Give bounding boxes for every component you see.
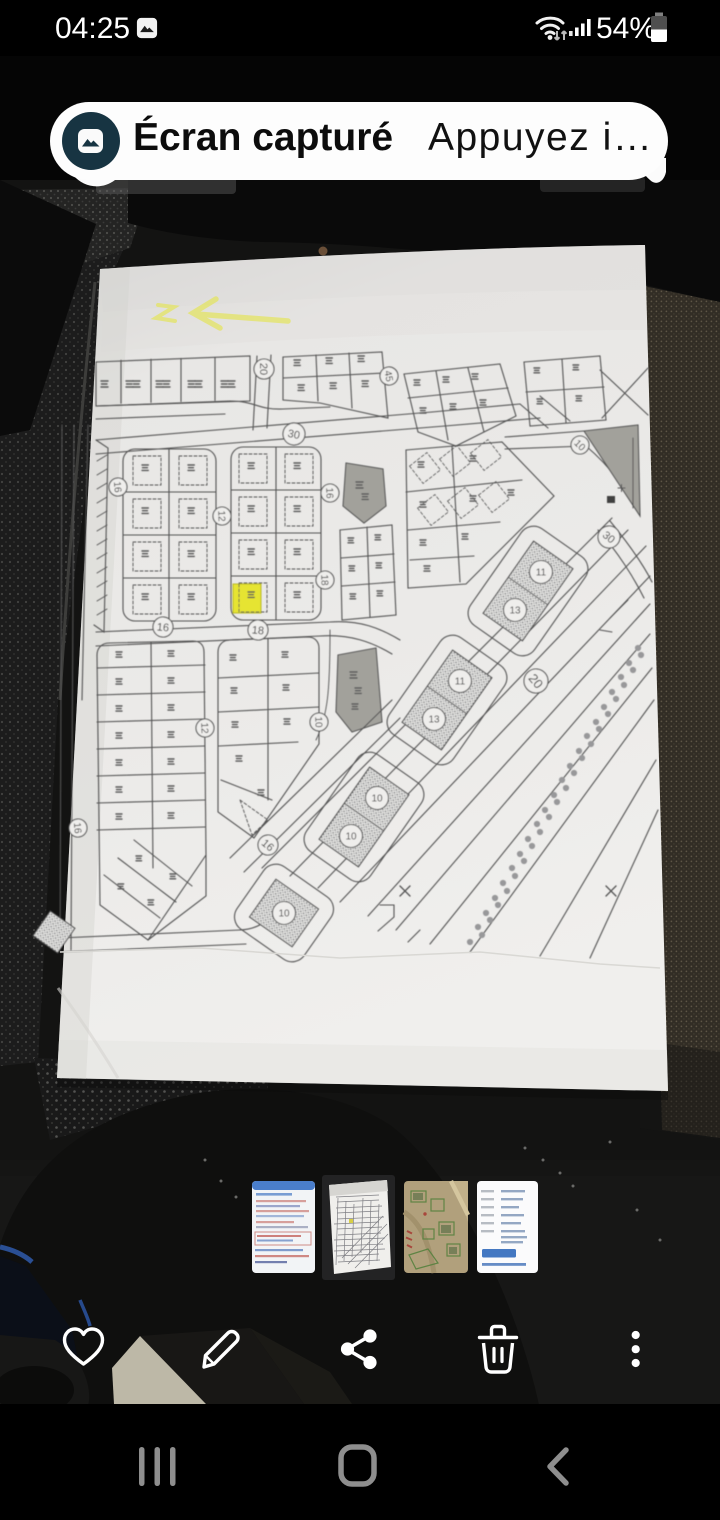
svg-text:12: 12 [198,722,209,734]
svg-text:30: 30 [287,428,301,442]
svg-text:13: 13 [509,606,521,617]
svg-text:20: 20 [257,363,269,375]
svg-text:16: 16 [111,481,123,493]
svg-text:10: 10 [312,716,323,728]
svg-text:13: 13 [428,715,440,726]
svg-text:18: 18 [251,624,264,637]
svg-text:16: 16 [323,487,334,499]
svg-text:10: 10 [371,794,383,805]
svg-text:10: 10 [345,832,357,843]
svg-text:16: 16 [156,621,169,634]
svg-text:11: 11 [455,677,466,688]
svg-text:11: 11 [536,568,547,579]
svg-text:12: 12 [215,510,226,522]
svg-text:10: 10 [278,909,290,920]
svg-text:18: 18 [318,574,329,586]
svg-text:16: 16 [71,822,83,834]
